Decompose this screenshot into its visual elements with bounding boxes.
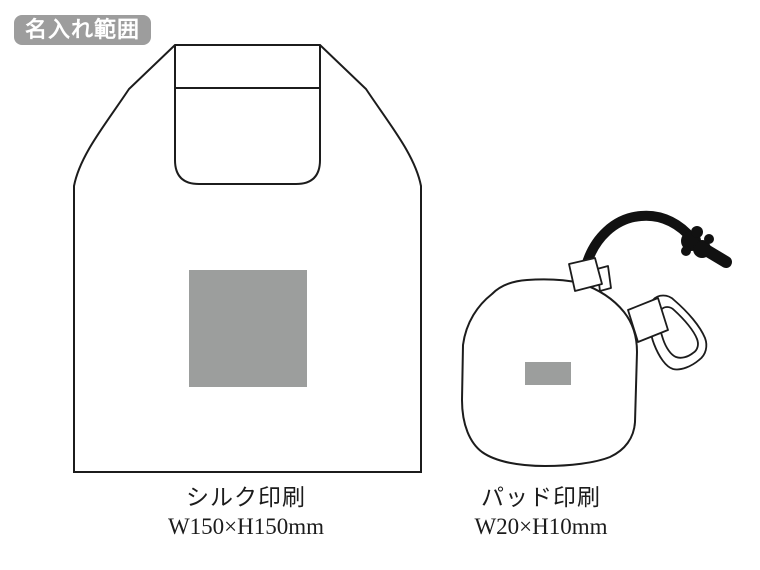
imprint-range-badge-label: 名入れ範囲: [25, 17, 140, 42]
pouch-cord: [586, 216, 692, 266]
pouch-print-size-label: W20×H10mm: [431, 512, 651, 541]
pouch-caption: パッド印刷 W20×H10mm: [431, 483, 651, 541]
cord-knot-bump: [691, 226, 703, 238]
tote-bag-outline: [74, 45, 421, 472]
tote-print-size-label: W150×H150mm: [96, 512, 396, 541]
imprint-area-diagram: 名入れ範囲 シルク印刷 W150×H150mm パッド印刷 W20×H10mm: [0, 0, 760, 570]
tote-caption: シルク印刷 W150×H150mm: [96, 483, 396, 541]
tote-print-method-label: シルク印刷: [96, 483, 396, 512]
cord-knot-bump: [704, 234, 714, 244]
tote-print-area: [189, 270, 307, 387]
tote-bag-illustration: [74, 45, 421, 472]
pouch-illustration: [462, 216, 726, 466]
cord-knot-bump: [681, 246, 691, 256]
pouch-print-area: [525, 362, 571, 385]
pouch-cord-tail: [701, 247, 726, 262]
imprint-range-badge: 名入れ範囲: [14, 15, 151, 45]
pouch-hang-tab: [569, 258, 602, 291]
pouch-print-method-label: パッド印刷: [431, 483, 651, 512]
